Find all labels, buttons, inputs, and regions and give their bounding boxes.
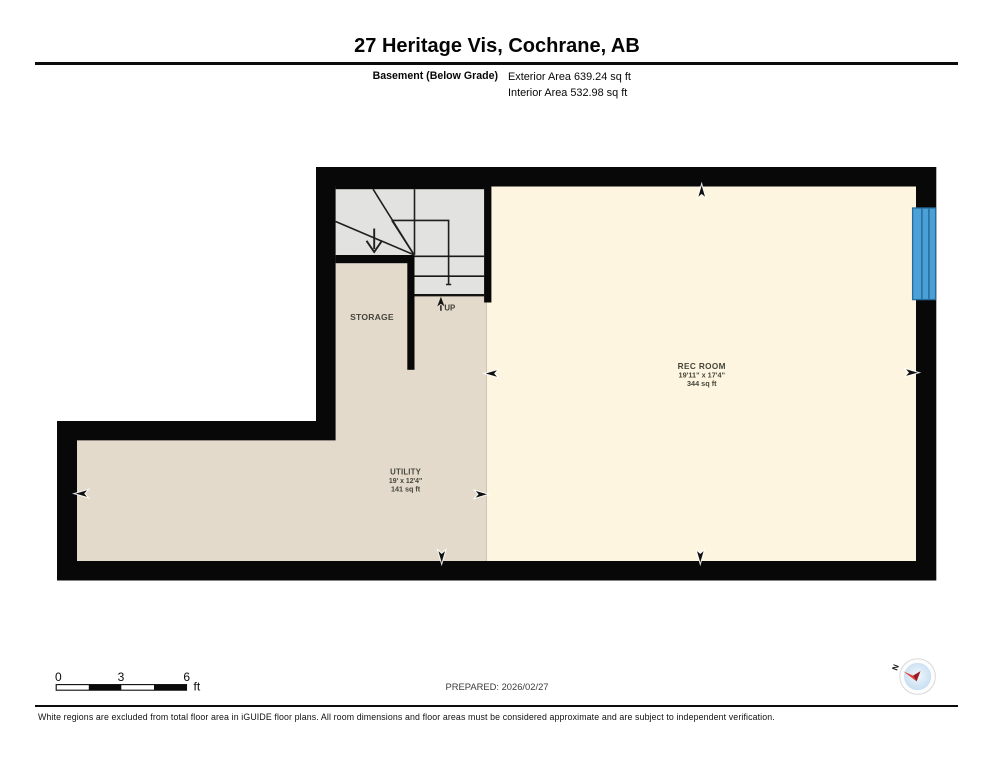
svg-text:STORAGE: STORAGE (350, 312, 394, 322)
svg-text:UP: UP (444, 304, 455, 313)
svg-text:UTILITY: UTILITY (390, 468, 421, 477)
svg-text:344 sq ft: 344 sq ft (687, 379, 717, 388)
svg-text:141 sq ft: 141 sq ft (391, 484, 421, 493)
svg-text:REC ROOM: REC ROOM (678, 362, 726, 371)
svg-text:N: N (890, 663, 901, 672)
